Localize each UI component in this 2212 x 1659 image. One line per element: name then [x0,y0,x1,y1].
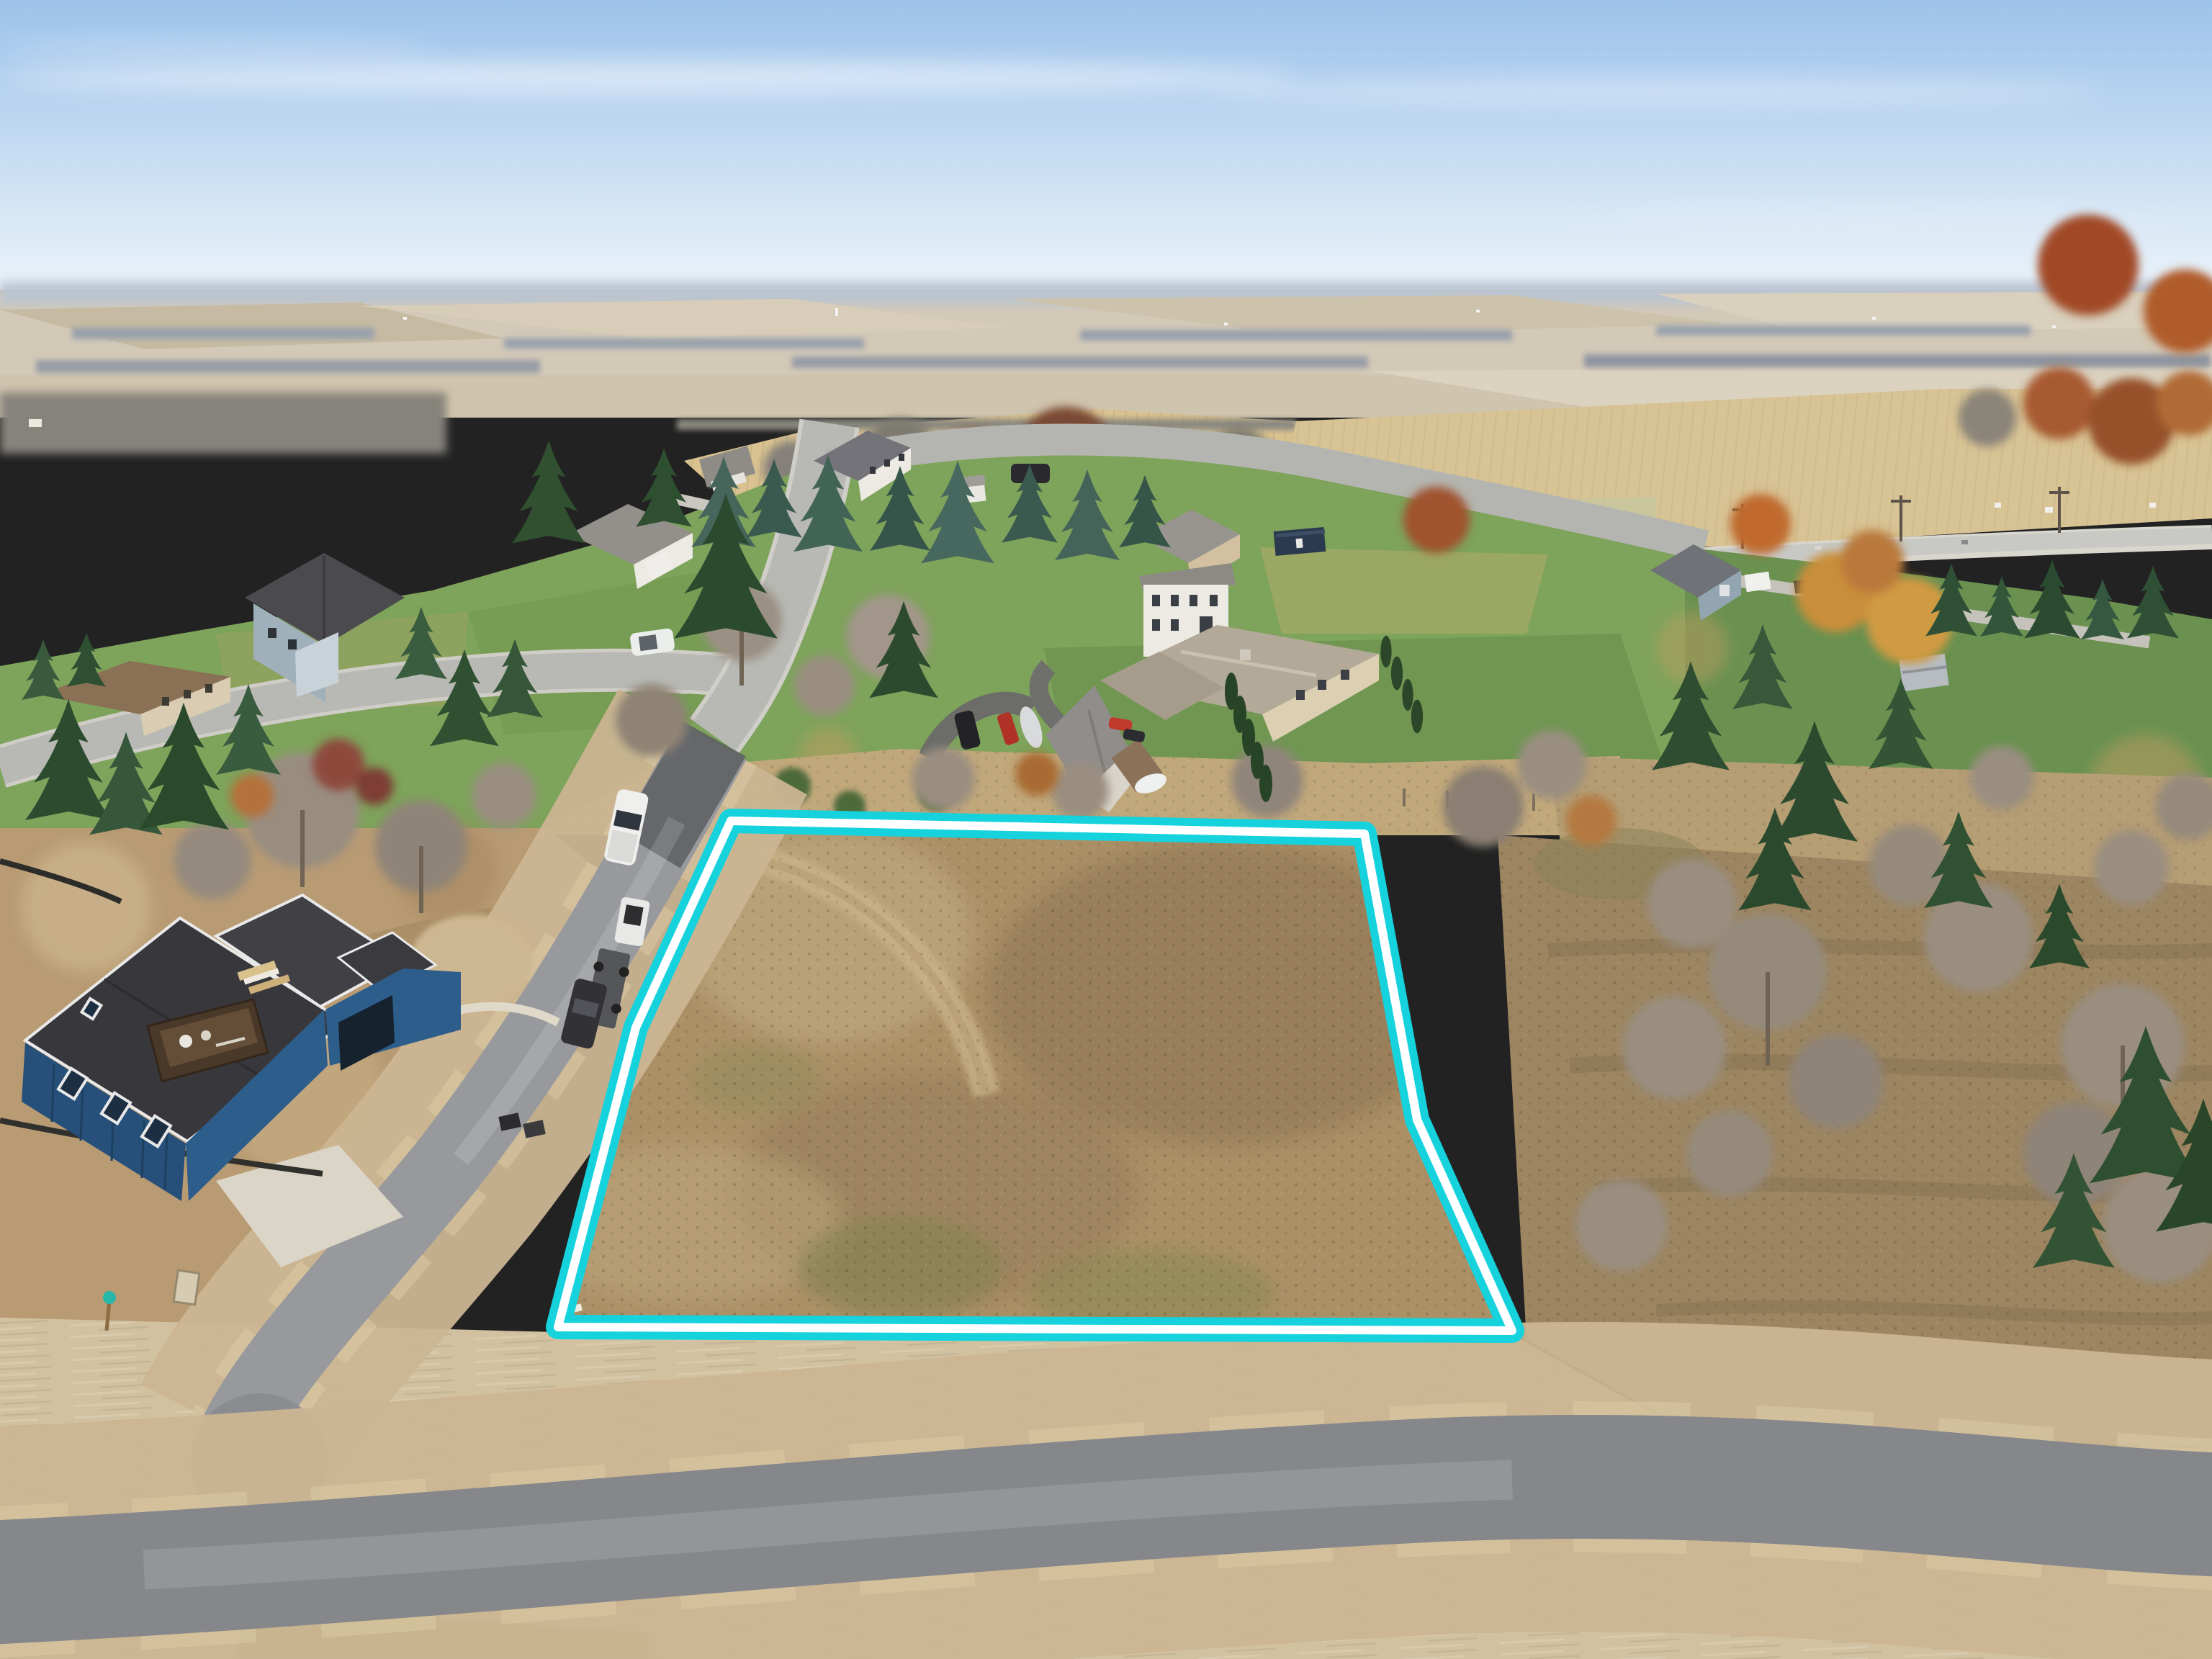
navy-shed [1274,527,1326,556]
dry-lawn-patch [1260,547,1548,634]
left-woods-strip [0,392,446,454]
porta-potty [174,1270,199,1305]
marker-flag [103,1291,116,1304]
aerial-photo-canvas [0,0,2212,1659]
aerial-photo [0,0,2212,1659]
tiny-left-farm [29,419,42,427]
sky [0,0,2212,302]
water-tower [835,308,838,316]
